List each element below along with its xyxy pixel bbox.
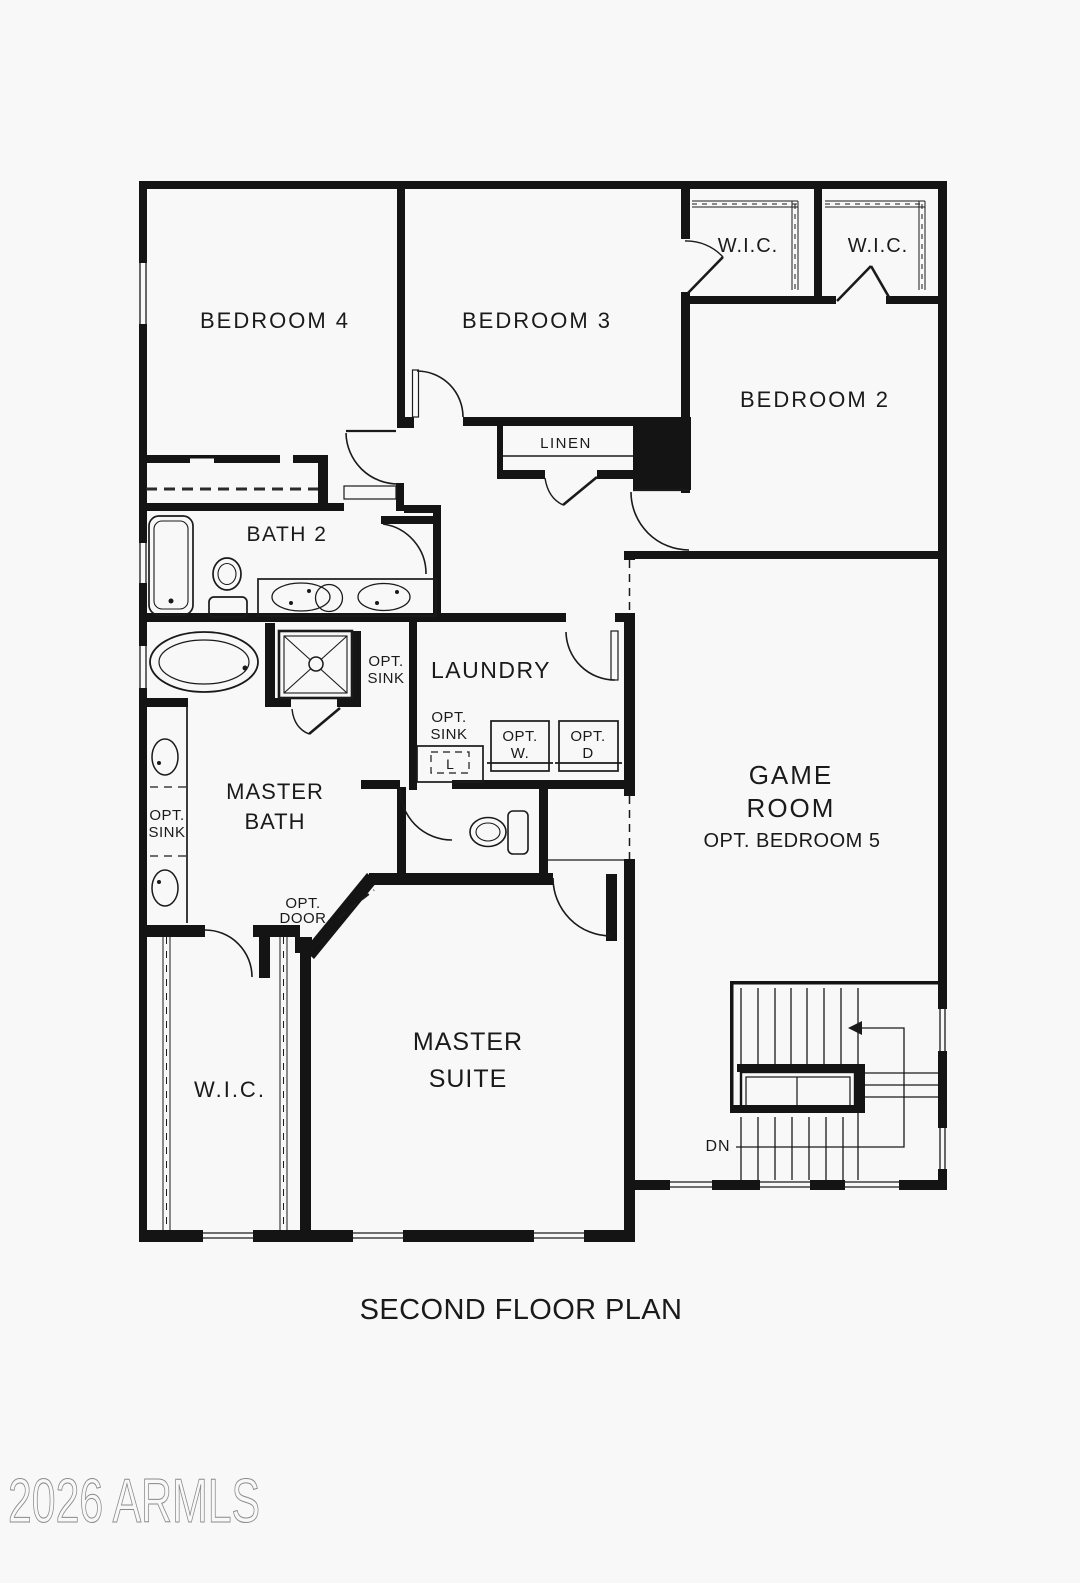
svg-text:OPT.: OPT.	[502, 728, 537, 745]
svg-text:D: D	[582, 745, 593, 762]
svg-text:SECOND FLOOR PLAN: SECOND FLOOR PLAN	[360, 1294, 683, 1326]
svg-text:W.I.C.: W.I.C.	[848, 235, 908, 257]
svg-text:SINK: SINK	[148, 824, 185, 841]
svg-text:SUITE: SUITE	[429, 1065, 508, 1093]
svg-text:SINK: SINK	[367, 670, 404, 687]
svg-text:BEDROOM 4: BEDROOM 4	[200, 308, 350, 333]
svg-text:LAUNDRY: LAUNDRY	[431, 657, 551, 683]
svg-text:LINEN: LINEN	[540, 435, 592, 452]
svg-text:OPT.: OPT.	[368, 653, 403, 670]
svg-text:W.I.C.: W.I.C.	[194, 1077, 266, 1102]
svg-text:MASTER: MASTER	[226, 779, 324, 804]
svg-text:DN: DN	[705, 1138, 730, 1155]
svg-text:BATH 2: BATH 2	[247, 523, 328, 546]
svg-text:OPT.: OPT.	[431, 709, 466, 726]
svg-text:MASTER: MASTER	[413, 1028, 523, 1056]
svg-text:GAME: GAME	[749, 760, 834, 790]
svg-text:W.: W.	[511, 745, 530, 762]
svg-text:OPT.: OPT.	[149, 807, 184, 824]
svg-text:2026 ARMLS: 2026 ARMLS	[8, 1467, 260, 1536]
svg-text:L: L	[446, 756, 454, 772]
svg-text:W.I.C.: W.I.C.	[718, 235, 778, 257]
svg-text:BEDROOM 2: BEDROOM 2	[740, 387, 890, 412]
svg-text:OPT.: OPT.	[570, 728, 605, 745]
svg-text:ROOM: ROOM	[747, 793, 836, 823]
svg-text:BATH: BATH	[244, 809, 305, 834]
svg-text:BEDROOM 3: BEDROOM 3	[462, 308, 612, 333]
svg-text:DOOR: DOOR	[280, 910, 327, 927]
svg-text:SINK: SINK	[430, 726, 467, 743]
svg-text:OPT. BEDROOM 5: OPT. BEDROOM 5	[703, 830, 880, 852]
